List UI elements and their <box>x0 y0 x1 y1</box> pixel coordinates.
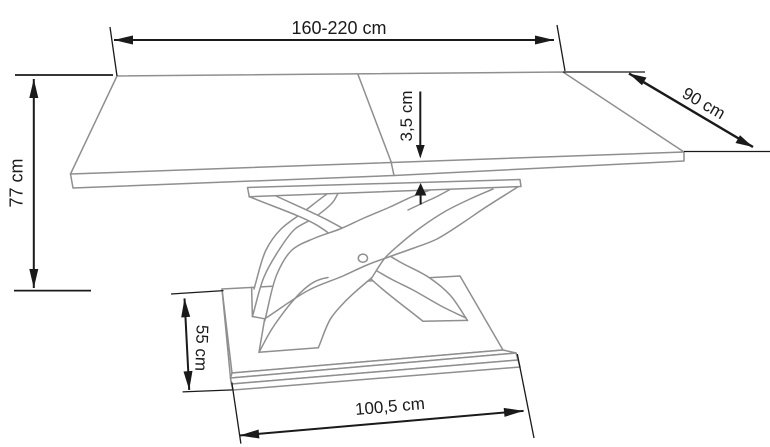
svg-text:160-220 cm: 160-220 cm <box>291 18 386 38</box>
svg-text:55 cm: 55 cm <box>191 325 212 372</box>
svg-text:100,5 cm: 100,5 cm <box>354 394 425 419</box>
svg-text:3,5 cm: 3,5 cm <box>397 90 416 141</box>
svg-text:77 cm: 77 cm <box>7 158 27 207</box>
